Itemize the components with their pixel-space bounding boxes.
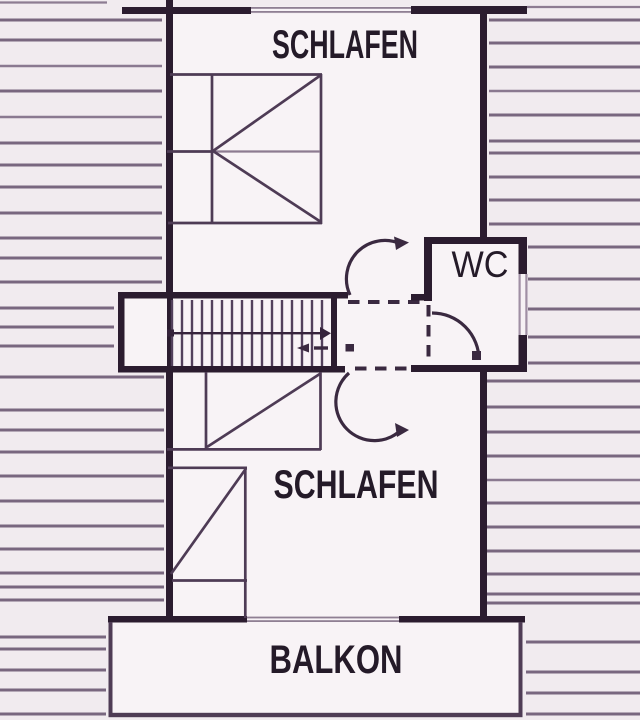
svg-text:BALKON: BALKON <box>270 638 403 682</box>
svg-text:SCHLAFEN: SCHLAFEN <box>272 23 418 67</box>
svg-text:SCHLAFEN: SCHLAFEN <box>274 463 439 507</box>
svg-text:WC: WC <box>452 244 509 285</box>
